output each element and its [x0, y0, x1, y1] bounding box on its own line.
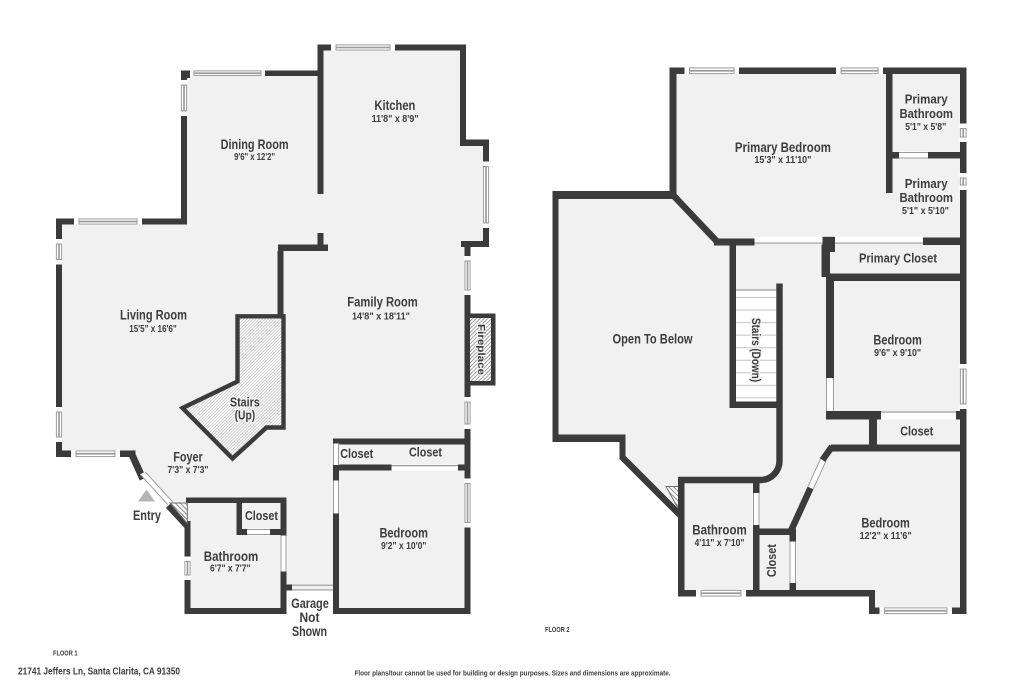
svg-text:Living Room: Living Room — [120, 307, 187, 322]
svg-text:Stairs (Down): Stairs (Down) — [749, 318, 763, 382]
svg-text:5'1" x 5'10": 5'1" x 5'10" — [902, 206, 949, 217]
svg-text:Primary Closet: Primary Closet — [859, 251, 938, 266]
svg-text:Floor plans/tour cannot be use: Floor plans/tour cannot be used for buil… — [355, 669, 671, 678]
svg-text:Dining Room: Dining Room — [221, 137, 289, 152]
svg-text:Garage: Garage — [291, 596, 329, 611]
svg-text:Closet: Closet — [245, 509, 279, 523]
svg-text:Bathroom: Bathroom — [899, 190, 953, 205]
svg-text:Primary Bedroom: Primary Bedroom — [735, 140, 831, 155]
svg-text:Foyer: Foyer — [173, 449, 203, 464]
svg-text:Closet: Closet — [409, 446, 443, 460]
svg-text:7'3" x 7'3": 7'3" x 7'3" — [168, 464, 209, 476]
svg-text:Family Room: Family Room — [347, 294, 418, 309]
svg-text:Bedroom: Bedroom — [379, 526, 428, 541]
svg-text:Bedroom: Bedroom — [873, 333, 922, 348]
svg-text:FLOOR 2: FLOOR 2 — [545, 627, 570, 634]
svg-text:14'8" x 18'11": 14'8" x 18'11" — [352, 310, 410, 322]
svg-text:11'8" x 8'9": 11'8" x 8'9" — [372, 113, 419, 125]
svg-text:Closet: Closet — [340, 447, 374, 461]
svg-text:Primary: Primary — [905, 92, 949, 107]
svg-text:6'7" x 7'7": 6'7" x 7'7" — [210, 563, 251, 575]
svg-text:Kitchen: Kitchen — [374, 98, 415, 113]
svg-text:Entry: Entry — [133, 508, 161, 523]
svg-text:Closet: Closet — [900, 425, 934, 439]
svg-text:Not: Not — [300, 610, 320, 625]
svg-text:15'5" x 16'6": 15'5" x 16'6" — [129, 323, 177, 335]
svg-text:15'3" x 11'10": 15'3" x 11'10" — [754, 154, 811, 166]
svg-text:21741 Jeffers Ln, Santa Clarit: 21741 Jeffers Ln, Santa Clarita, CA 9135… — [18, 666, 180, 678]
svg-text:Fireplace: Fireplace — [475, 324, 486, 375]
svg-text:4'11" x 7'10": 4'11" x 7'10" — [695, 537, 745, 549]
svg-text:FLOOR 1: FLOOR 1 — [53, 651, 78, 658]
svg-text:Bedroom: Bedroom — [861, 515, 910, 530]
svg-text:Shown: Shown — [292, 624, 327, 639]
svg-text:9'6" x 9'10": 9'6" x 9'10" — [874, 347, 921, 359]
svg-text:Bathroom: Bathroom — [692, 523, 747, 538]
svg-text:Primary: Primary — [905, 176, 949, 191]
svg-text:Bathroom: Bathroom — [899, 106, 953, 121]
svg-text:12'2" x 11'6": 12'2" x 11'6" — [860, 530, 912, 542]
svg-text:5'1" x 5'8": 5'1" x 5'8" — [905, 122, 946, 133]
svg-text:9'2" x 10'0": 9'2" x 10'0" — [381, 540, 427, 552]
svg-text:9'6" x 12'2": 9'6" x 12'2" — [234, 151, 275, 163]
svg-text:Closet: Closet — [765, 543, 779, 577]
svg-text:(Up): (Up) — [235, 408, 256, 423]
svg-text:Open To Below: Open To Below — [613, 331, 693, 346]
